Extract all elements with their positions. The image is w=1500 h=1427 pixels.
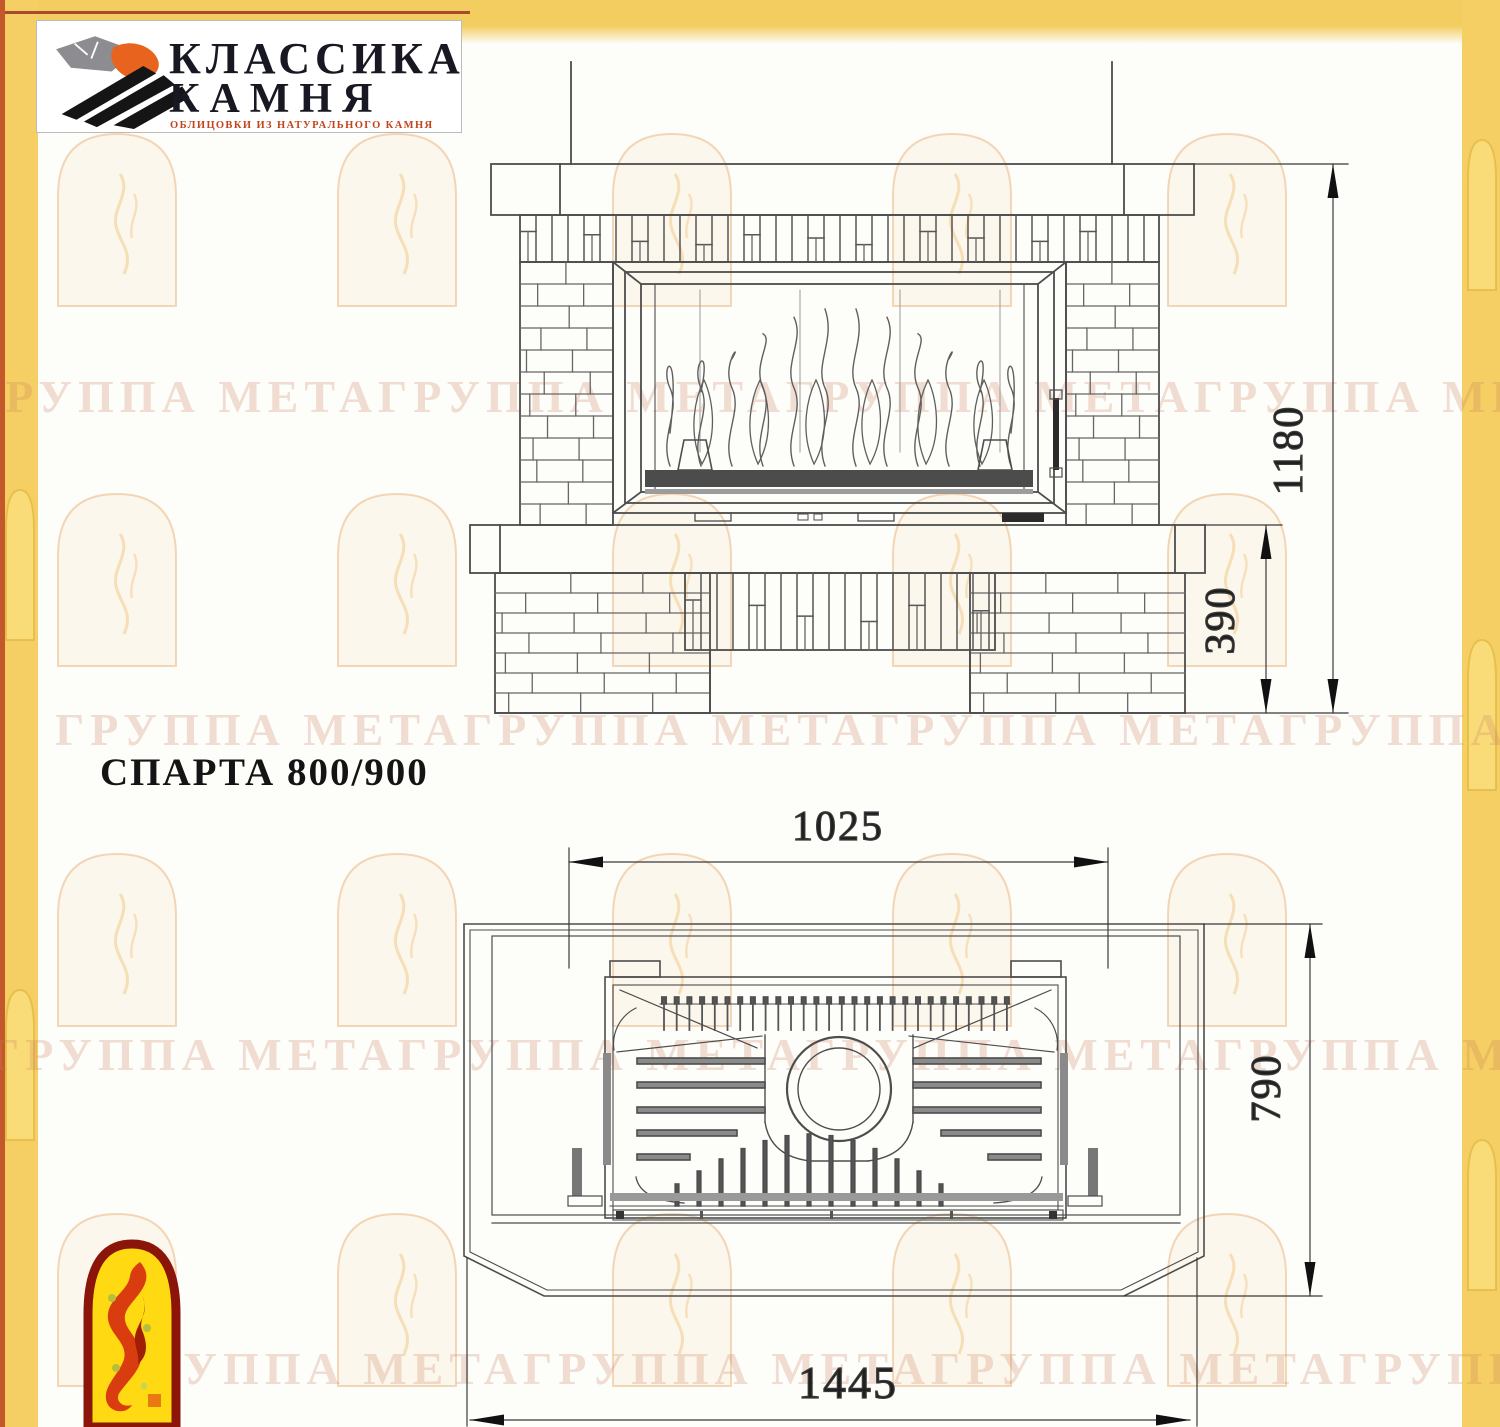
fin-cap bbox=[941, 997, 945, 1004]
model-title: СПАРТА 800/900 bbox=[100, 750, 429, 795]
dim-label-1025: 1025 bbox=[792, 804, 884, 850]
front-elevation-view bbox=[470, 62, 1205, 713]
hearth-strip bbox=[645, 470, 1033, 494]
door-handle bbox=[1050, 390, 1062, 477]
fin-cap bbox=[878, 997, 882, 1004]
rib-bar bbox=[913, 1082, 1041, 1088]
fin-cap bbox=[827, 997, 831, 1004]
tile-frieze bbox=[520, 215, 1159, 262]
brick-block-outline bbox=[970, 573, 1185, 713]
technical-drawing: 1180 390 bbox=[0, 0, 1500, 1427]
lower-shelf bbox=[470, 525, 1205, 573]
drawing-line bbox=[667, 366, 673, 466]
drawing-line bbox=[918, 380, 937, 464]
fin-cap bbox=[814, 997, 818, 1004]
rib-bar bbox=[637, 1154, 690, 1160]
dimension-1180: 1180 bbox=[1266, 164, 1339, 713]
dimension-790: 790 bbox=[1124, 924, 1322, 1296]
rib-bar bbox=[913, 1107, 1041, 1113]
plan-dimensions: 1025 790 1445 bbox=[467, 804, 1322, 1426]
insert-topview bbox=[568, 961, 1102, 1220]
fin-cap bbox=[916, 997, 920, 1004]
fin-cap bbox=[700, 997, 704, 1004]
front-sill bbox=[610, 1193, 1063, 1220]
rib-bar bbox=[941, 1130, 1041, 1136]
dim-label-390: 390 bbox=[1198, 586, 1244, 655]
rib-bar bbox=[988, 1154, 1041, 1160]
fin-cap bbox=[675, 997, 679, 1004]
base-left-brick-block bbox=[495, 573, 710, 713]
rib-bar bbox=[637, 1082, 765, 1088]
base-tile-band bbox=[685, 573, 995, 650]
rib-bar bbox=[637, 1058, 765, 1064]
meta-orange-square bbox=[148, 1394, 161, 1407]
fin-cap bbox=[865, 997, 869, 1004]
fin-cap bbox=[725, 997, 729, 1004]
drawing-line bbox=[862, 380, 881, 464]
frieze-outline bbox=[685, 573, 995, 650]
brick-block-outline bbox=[495, 573, 710, 713]
company-logo-box: КЛАССИКА КАМНЯ ОБЛИЦОВКИ ИЗ НАТУРАЛЬНОГО… bbox=[36, 20, 462, 133]
dim-label-1180: 1180 bbox=[1266, 405, 1312, 495]
dim-label-1445: 1445 bbox=[798, 1357, 898, 1408]
fin-cap bbox=[992, 997, 996, 1004]
dimension-1445: 1445 bbox=[467, 1258, 1197, 1426]
fin-cap bbox=[763, 997, 767, 1004]
logo-brand-line2: КАМНЯ bbox=[169, 75, 382, 123]
drawing-line bbox=[791, 317, 797, 466]
dimension-390: 390 bbox=[1198, 525, 1272, 713]
mantel-shelf bbox=[491, 164, 1194, 215]
back-heat-fins bbox=[662, 997, 1009, 1030]
fin-cap bbox=[662, 997, 666, 1004]
dim-label-790: 790 bbox=[1244, 1054, 1290, 1123]
chimney-lines bbox=[571, 62, 1112, 164]
drawing-line bbox=[750, 380, 769, 464]
base-right-brick-block bbox=[970, 573, 1185, 713]
fin-cap bbox=[751, 997, 755, 1004]
drawing-line bbox=[698, 361, 704, 466]
front-dimensions: 1180 390 bbox=[1185, 164, 1348, 713]
door-feet-and-vents bbox=[695, 513, 1044, 522]
plan-view bbox=[464, 924, 1204, 1296]
fin-cap bbox=[713, 997, 717, 1004]
fin-cap bbox=[979, 997, 983, 1004]
page: ГРУППА МЕТАГРУППА МЕТАГРУППА МЕТАГРУППА … bbox=[0, 0, 1500, 1427]
hearth-slab-outline bbox=[464, 924, 1204, 1296]
andirons bbox=[678, 440, 1012, 470]
fin-cap bbox=[929, 997, 933, 1004]
rib-bar bbox=[637, 1107, 765, 1113]
flue-circle bbox=[787, 1037, 891, 1141]
rib-bar bbox=[913, 1058, 1041, 1064]
decorative-flames bbox=[667, 290, 1014, 466]
fin-cap bbox=[789, 997, 793, 1004]
right-brick-column bbox=[1066, 262, 1159, 525]
dimension-1025: 1025 bbox=[569, 804, 1108, 968]
fin-cap bbox=[852, 997, 856, 1004]
base-recess bbox=[495, 650, 1185, 713]
side-ribs bbox=[637, 1058, 1041, 1160]
fin-cap bbox=[802, 997, 806, 1004]
fin-cap bbox=[738, 997, 742, 1004]
fin-cap bbox=[967, 997, 971, 1004]
logo-tagline: ОБЛИЦОВКИ ИЗ НАТУРАЛЬНОГО КАМНЯ bbox=[170, 120, 434, 131]
drawing-line bbox=[729, 352, 735, 466]
fin-cap bbox=[1005, 997, 1009, 1004]
rib-bar bbox=[637, 1130, 737, 1136]
meta-flame-logo bbox=[80, 1236, 184, 1427]
smoke-shelf-diagonals bbox=[614, 990, 1058, 1052]
fin-cap bbox=[776, 997, 780, 1004]
left-brick-column bbox=[520, 262, 613, 525]
drawing-line bbox=[884, 317, 890, 466]
fin-cap bbox=[890, 997, 894, 1004]
fin-cap bbox=[954, 997, 958, 1004]
drawing-line bbox=[946, 352, 952, 466]
fin-cap bbox=[687, 997, 691, 1004]
drawing-line bbox=[853, 309, 859, 466]
fin-cap bbox=[903, 997, 907, 1004]
fin-cap bbox=[840, 997, 844, 1004]
